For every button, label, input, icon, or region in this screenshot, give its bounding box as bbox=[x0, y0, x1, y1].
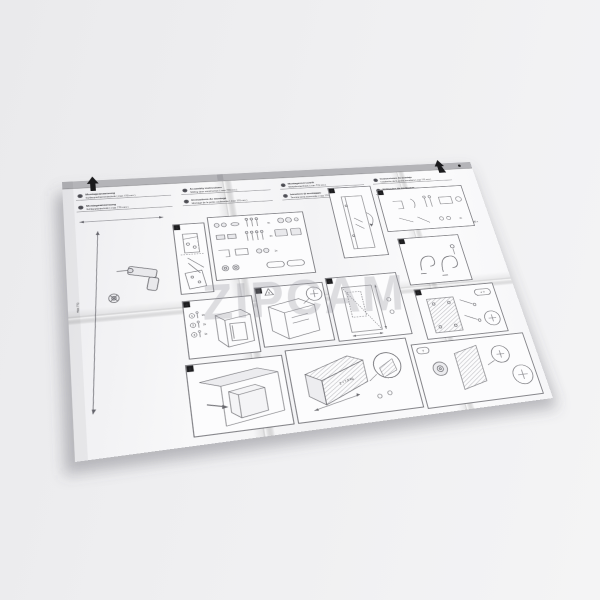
step-panel-7: 7 bbox=[398, 235, 473, 285]
step-panel-9: 9 bbox=[186, 355, 295, 437]
fixing-panel: ? bbox=[411, 333, 543, 409]
step-panel-5: 5 ! bbox=[254, 282, 334, 347]
step-panel-4: 4 1 2x 2 2x 3 1x bbox=[182, 296, 261, 360]
product-photo: D Montageanweisung Schleppscharniertechn… bbox=[0, 0, 600, 600]
weight-panel: 2 + 7,5 kg bbox=[285, 338, 424, 423]
screwdriver-icon bbox=[113, 265, 160, 291]
header-group-1: D Montageanweisung Schleppscharniertechn… bbox=[76, 188, 173, 212]
grommet-icon bbox=[108, 294, 119, 303]
step-panel-8: 8 + ? bbox=[414, 283, 508, 340]
step-panel-1: 1 bbox=[173, 223, 214, 295]
parts-overview-panel: 4x 2x 1x bbox=[207, 212, 315, 281]
step-panel-3: 3 2x bbox=[377, 185, 475, 231]
